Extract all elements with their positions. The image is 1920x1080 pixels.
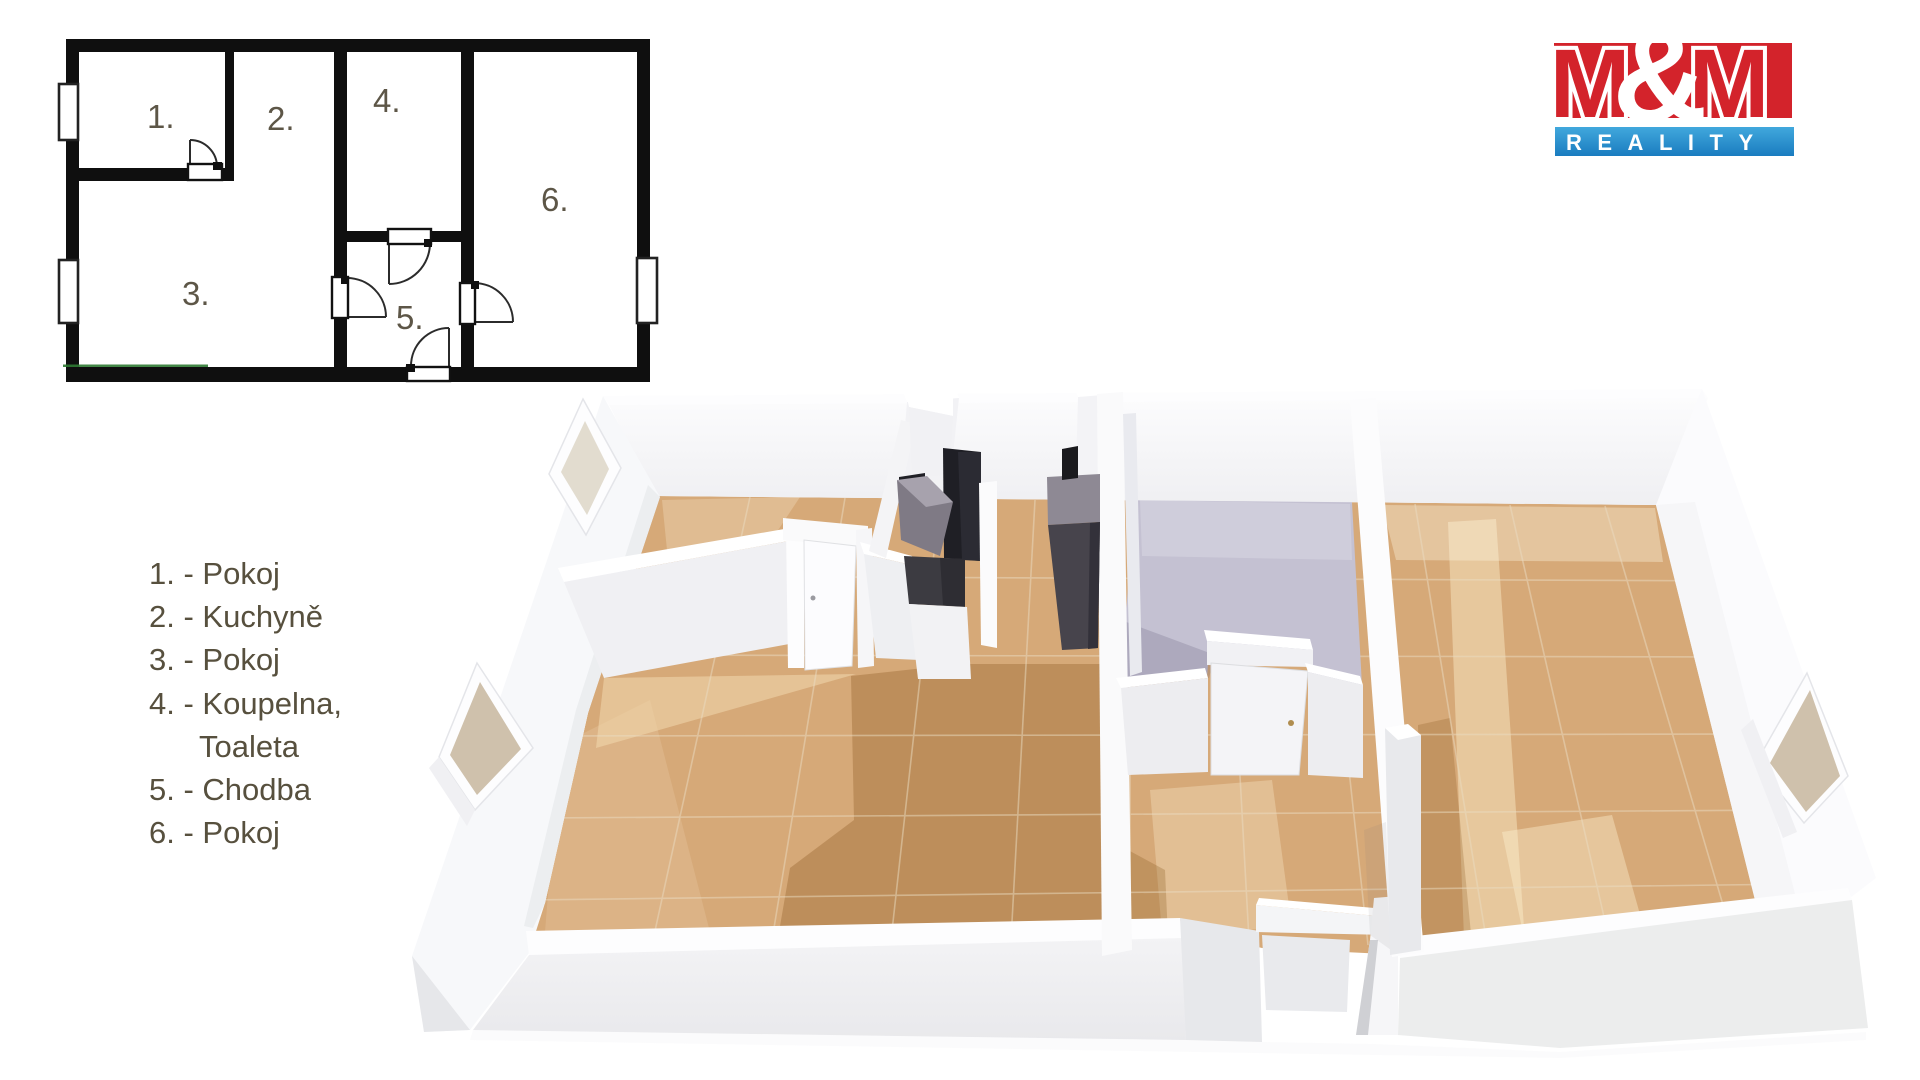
- svg-text:4. - Koupelna,: 4. - Koupelna,: [149, 686, 342, 721]
- svg-text:4.: 4.: [373, 82, 401, 119]
- svg-text:2.: 2.: [267, 100, 295, 137]
- svg-text:6.: 6.: [541, 181, 569, 218]
- svg-text:1. - Pokoj: 1. - Pokoj: [149, 556, 280, 591]
- svg-text:3. - Pokoj: 3. - Pokoj: [149, 642, 280, 677]
- svg-text:Toaleta: Toaleta: [199, 729, 300, 764]
- svg-text:2. - Kuchyně: 2. - Kuchyně: [149, 599, 323, 634]
- svg-text:3.: 3.: [182, 275, 210, 312]
- svg-text:5.: 5.: [396, 299, 424, 336]
- svg-text:5. - Chodba: 5. - Chodba: [149, 772, 312, 807]
- svg-text:&: &: [1612, 2, 1707, 149]
- svg-text:6. - Pokoj: 6. - Pokoj: [149, 815, 280, 850]
- svg-text:1.: 1.: [147, 98, 175, 135]
- svg-text:REALITY: REALITY: [1566, 130, 1769, 155]
